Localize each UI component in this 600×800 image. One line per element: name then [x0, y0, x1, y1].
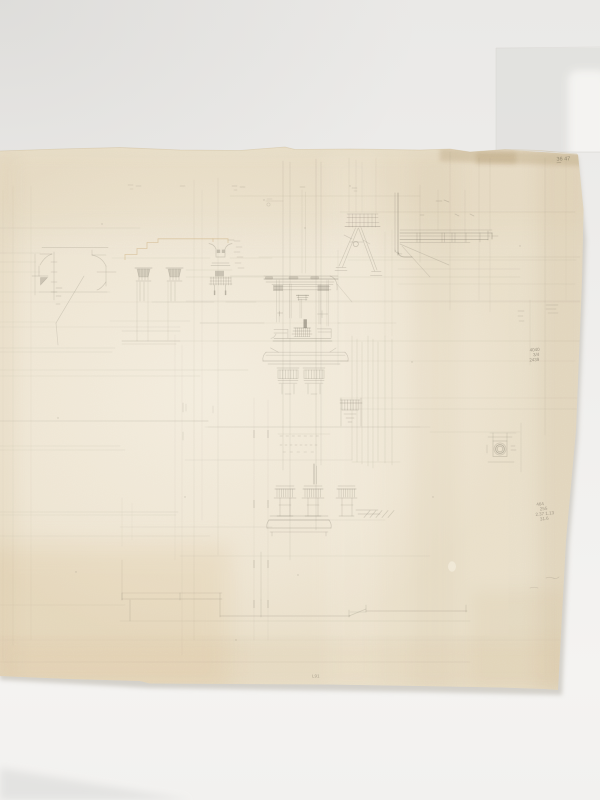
- svg-text:L91: L91: [312, 674, 320, 679]
- svg-text:36 47: 36 47: [556, 156, 570, 162]
- svg-text:31.6: 31.6: [540, 516, 550, 522]
- svg-text:2439: 2439: [529, 357, 540, 363]
